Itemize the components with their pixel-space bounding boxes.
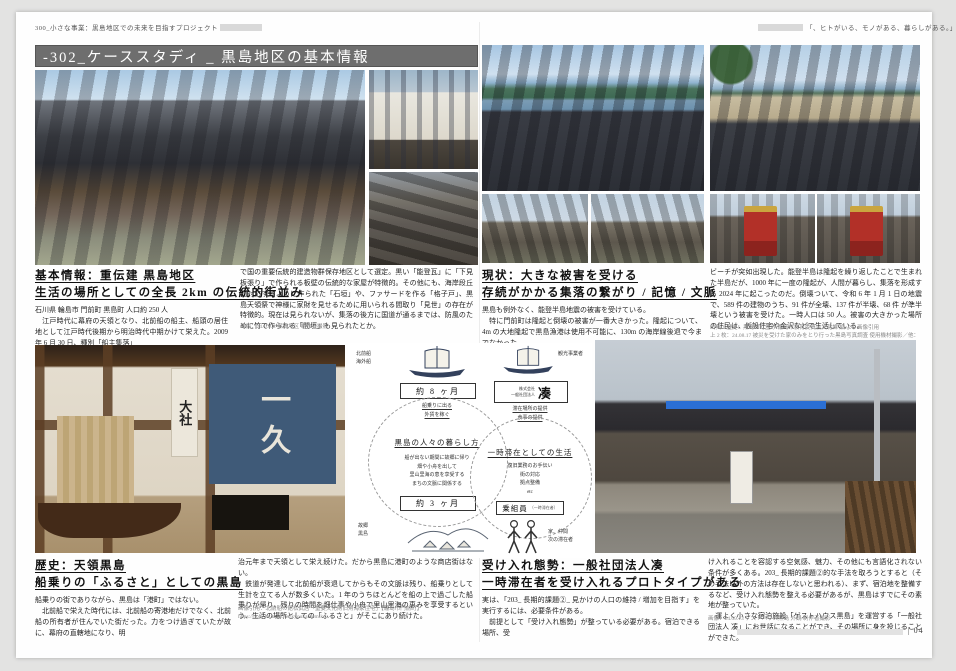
next-visitors-label: 家、仲間 次の滞在者 [548, 529, 573, 544]
photo-guesthouse-kuroshima [595, 340, 916, 553]
kitamaebune-boat-icon [403, 345, 473, 379]
photo-earthquake-damage-2 [591, 194, 704, 263]
heading-line: 現状：大きな被害を受ける [482, 268, 717, 285]
section-history-heading: 歴史：天領黒島 船乗りの「ふるさと」としての黒島 [35, 558, 243, 592]
period-3-months-box: 約 3 ヶ月 [400, 496, 476, 511]
tour-boat-icon [498, 345, 560, 375]
indigo-banner: 一久 [209, 364, 336, 485]
ship-model-hull-shape [38, 503, 181, 538]
header-right-placeholder-box [758, 24, 803, 31]
basic-info-caption: 画像：24.10.02 黒島地区 制作者撮影 [240, 323, 473, 331]
reception-column-1: 実は、「203_ 長期的課題②_ 見かけの人口の維持 / 増加を目指す」を実行す… [482, 595, 700, 638]
photo-traditional-streetscape [35, 70, 365, 265]
festival-float-shape [744, 206, 778, 256]
two-people-sketch [502, 519, 542, 557]
photo-festival-float-1 [710, 194, 815, 263]
heading-line: 存続がかかる集落の繋がり / 記憶 / 文脈 [482, 285, 717, 302]
lumber-stack-shape [845, 481, 916, 553]
display-table-shape [212, 495, 290, 530]
temporary-stay-note: 復旧業務のお手伝い 街の対応 拠点整備 etc [476, 463, 584, 497]
home-village-sketch [406, 517, 490, 555]
footer-placeholder-bar [737, 629, 903, 635]
current-state-column-2: ビーチが突如出現した。能登半島は隆起を繰り返したことで生まれた半島だが、1000… [710, 267, 922, 332]
page-title: -302_ケーススタディ _ 黒島地区の基本情報 [43, 46, 370, 67]
running-header-left: 300_小さな事業：黒島地区での未来を目指すプロジェクト [35, 22, 218, 32]
page-number: | 04 [908, 626, 924, 635]
minato-organization-box: 株式会社 一般社団法人 凑 [494, 381, 568, 403]
section-title-bar: -302_ケーススタディ _ 黒島地区の基本情報 [35, 45, 478, 67]
section-current-state-heading: 現状：大きな被害を受ける 存続がかかる集落の繋がり / 記憶 / 文脈 [482, 268, 717, 302]
org-name-label: 凑 [538, 383, 551, 402]
boat-type-label: 北前船 海外船 [356, 351, 371, 366]
basic-info-column-1: 石川県 輪島市 門前町 黒島町 人口約 250 人 江戸時代に幕府の天領となり、… [35, 305, 228, 348]
running-header-right: 「、ヒトがいる、モノがある、暮らしがある。」 [806, 22, 956, 32]
temporary-stay-title: 一時滞在としての生活 [472, 447, 588, 458]
photo-uplifted-beach [710, 45, 920, 191]
lifestyle-cycle-diagram: 北前船 海外船 約 8 ヶ月 船乗りに出る 外貨を稼ぐ 黒島の人々の暮らし方 船… [348, 343, 592, 558]
white-signboard-shape [730, 451, 753, 504]
history-caption: 画像引用：北前船の館松武居「重要文化財旧角海家住宅」【輪島市門前町】 [238, 605, 473, 613]
crew-label: 乗組員 [502, 503, 528, 514]
blue-tarp-shape [666, 401, 827, 410]
heading-line: 一時滞在者を受け入れるプロトタイプがある [482, 575, 742, 592]
photo-earthquake-damage-1 [482, 194, 588, 263]
magazine-spread: 300_小さな事業：黒島地区での未来を目指すプロジェクト 「、ヒトがいる、モノが… [0, 0, 956, 671]
history-column-1: 船乗りの街でありながら、黒島は「港町」ではない。 北前船で栄えた時代には、北前船… [35, 595, 231, 638]
crew-box: 乗組員 （一時滞在者） [496, 501, 564, 515]
history-caption-url: https://noto-tourism.net/kyoukaidomike [238, 613, 473, 621]
heading-line: 歴史：天領黒島 [35, 558, 243, 575]
photo-wall-detail [369, 70, 478, 169]
org-type-label: 株式会社 一般社団法人 [511, 386, 535, 397]
reception-caption: 画像：24.09.13 ゲストハウス黒島 外観 制作者撮影 [708, 615, 922, 623]
photo-museum-ship-model: 一久 大社 [35, 345, 345, 553]
section-reception-heading: 受け入れ態勢：一般社団法人凑 一時滞在者を受け入れるプロトタイプがある [482, 558, 742, 592]
photo-stone-garden [369, 172, 478, 265]
tour-operator-label: 観光事業者 [558, 351, 583, 359]
crew-sub-label: （一時滞在者） [530, 505, 558, 511]
festival-float-shape [850, 206, 883, 256]
photo-festival-float-2 [817, 194, 920, 263]
taisha-banner: 大社 [171, 368, 198, 457]
photo-village-rooftops-sea [482, 45, 704, 191]
current-state-caption-1: 出典・歴史：黒島の町並み 輪島市教育委員会文化課 編 より画像引用 [710, 324, 922, 332]
heading-line: 船乗りの「ふるさと」としての黒島 [35, 575, 243, 592]
ship-model-sail-shape [57, 416, 135, 508]
home-village-label: 故郷 黒島 [358, 523, 368, 538]
header-left-placeholder-box [220, 24, 262, 31]
heading-line: 受け入れ態勢：一般社団法人凑 [482, 558, 742, 575]
